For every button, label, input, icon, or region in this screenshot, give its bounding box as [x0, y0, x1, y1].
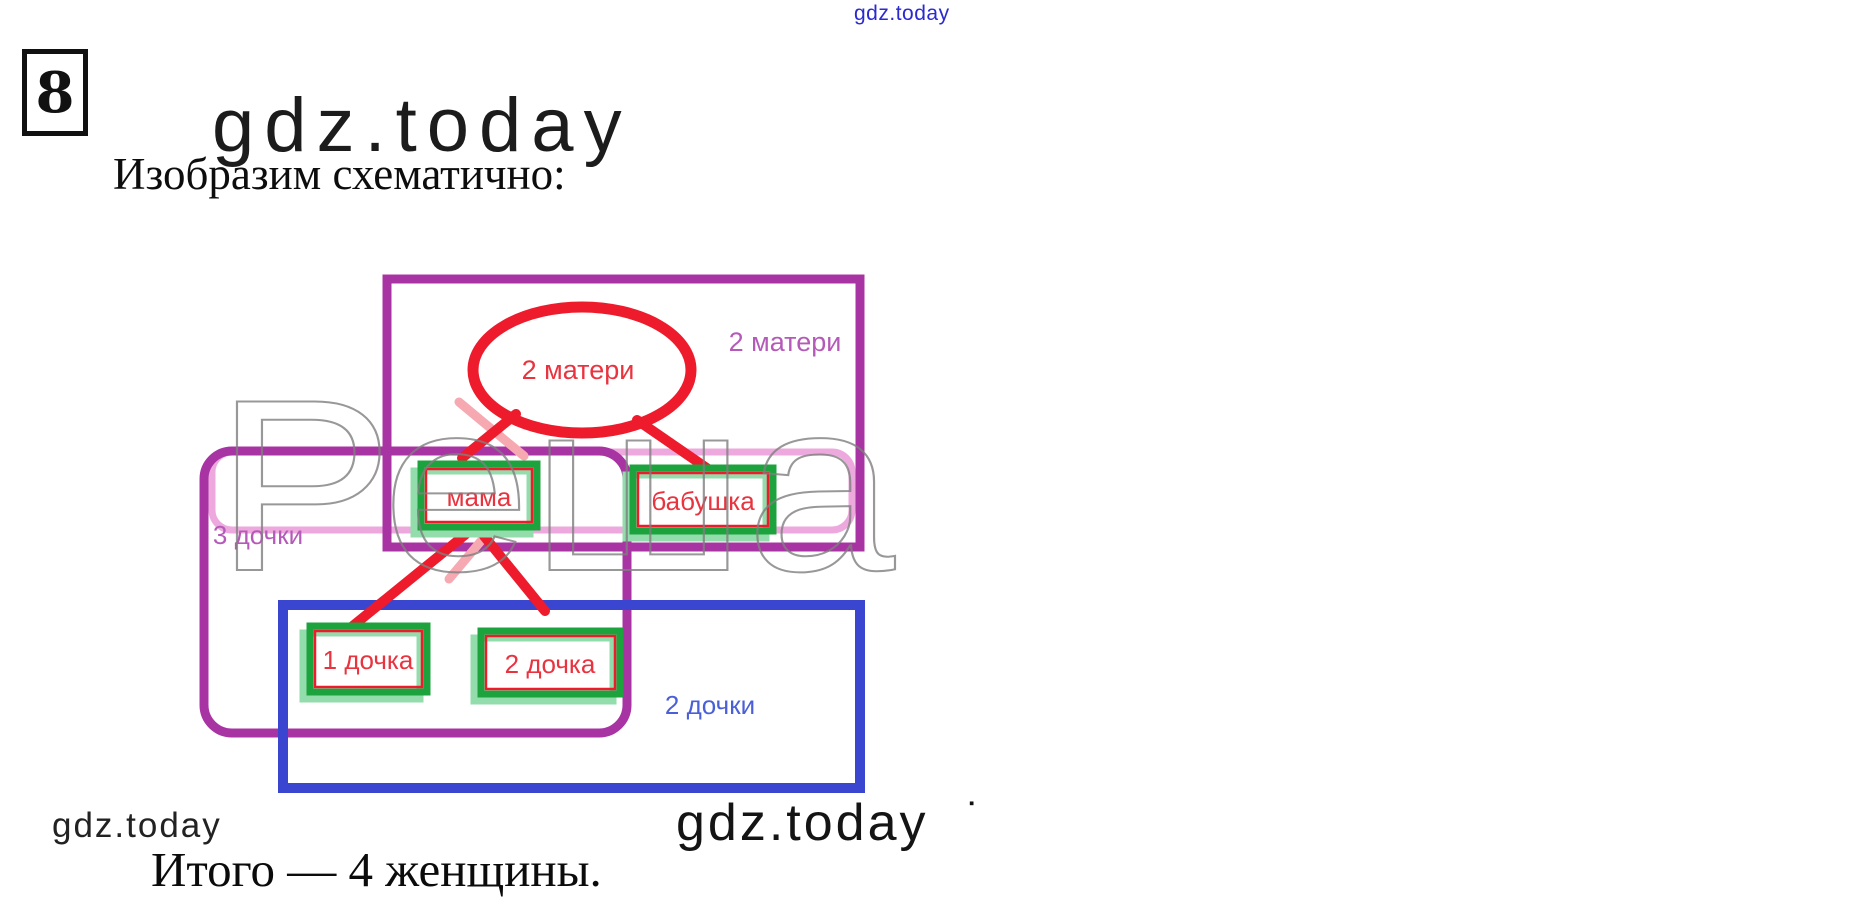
- solution-page: gdz.today 8 gdz.today Изобразим схематич…: [0, 0, 1849, 921]
- daughter2-box: 2 дочка: [474, 631, 620, 701]
- conclusion-text: Итого — 4 женщины.: [151, 841, 602, 898]
- overlay-watermark-text: Реша: [215, 348, 896, 622]
- small-square-mark: ▪: [969, 795, 974, 812]
- footer-left-watermark-text: gdz.today: [52, 806, 222, 846]
- family-sets-diagram: мама бабушка 1 дочка 2 дочка 2 мате: [0, 0, 1849, 921]
- daughter2-label: 2 дочка: [505, 649, 596, 679]
- daughter1-label: 1 дочка: [323, 645, 414, 675]
- footer-center-watermark-text: gdz.today: [676, 793, 929, 853]
- daughter1-box: 1 дочка: [303, 626, 427, 699]
- daughters2-label: 2 дочки: [665, 690, 755, 720]
